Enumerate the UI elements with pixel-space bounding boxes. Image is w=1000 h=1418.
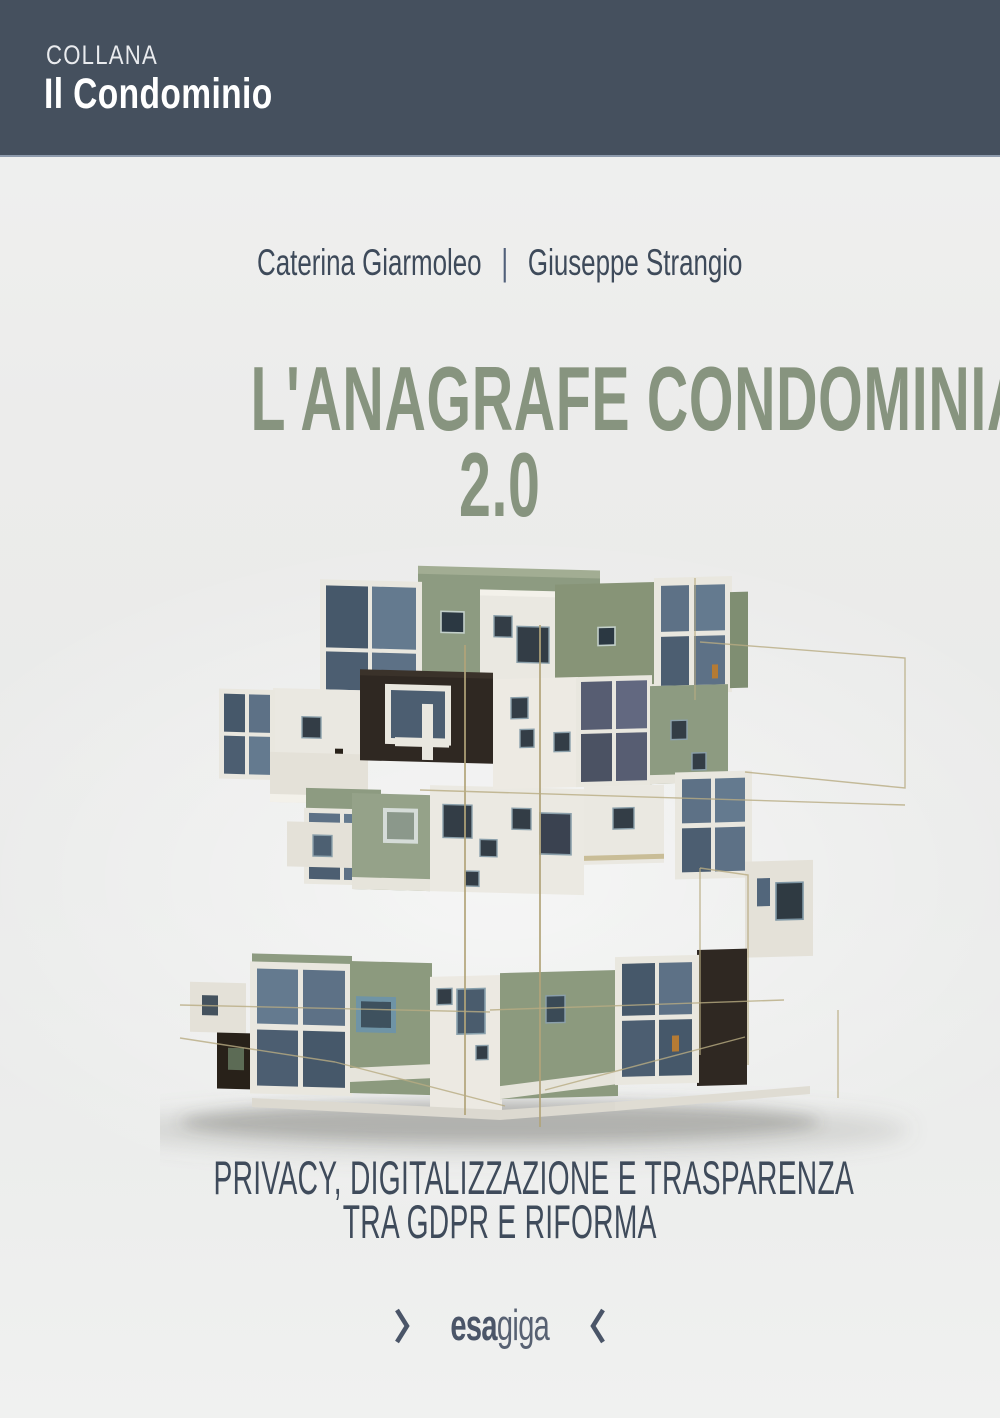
module-dark-sliver (697, 949, 747, 1086)
book-cover: COLLANA Il Condominio Caterina Giarmoleo… (0, 0, 1000, 1418)
module-glass-bottom-right (615, 955, 699, 1085)
module-dark-balcony (360, 669, 493, 763)
publisher-logo: esagiga (0, 1304, 1000, 1348)
author-first: Caterina Giarmoleo (257, 242, 482, 283)
module-glass-bottom-left (250, 953, 352, 1096)
module-green-bottom-left (350, 961, 432, 1095)
module-white-column-upper (493, 677, 578, 789)
publisher-name-light: giga (497, 1301, 549, 1350)
series-title: Il Condominio (44, 70, 273, 119)
module-window-box-right (675, 770, 752, 879)
module-glass-purple (576, 675, 652, 787)
module-white-column (430, 785, 584, 895)
author-second: Giuseppe Strangio (528, 242, 743, 283)
author-separator: | (502, 242, 509, 283)
series-label: COLLANA (46, 40, 158, 71)
left-chevron-icon (394, 1307, 411, 1345)
series-banner: COLLANA Il Condominio (0, 0, 1000, 157)
publisher-name: esagiga (451, 1304, 550, 1348)
publisher-name-bold: esa (451, 1301, 497, 1350)
module-white-far-right (745, 860, 813, 958)
module-white-balcony (287, 821, 352, 868)
module-white-left (219, 687, 368, 805)
module-green-mid-left (352, 793, 430, 891)
subtitle-line2: TRA GDPR E RIFORMA (0, 1194, 1000, 1249)
right-chevron-icon (589, 1307, 606, 1345)
module-green-right (650, 684, 728, 784)
module-green-bottom-right (500, 970, 618, 1099)
authors-line: Caterina Giarmoleo | Giuseppe Strangio (0, 242, 1000, 284)
module-window-box-top-right (654, 576, 748, 694)
book-title-line2: 2.0 (0, 434, 1000, 538)
modular-building-illustration (160, 550, 960, 1210)
